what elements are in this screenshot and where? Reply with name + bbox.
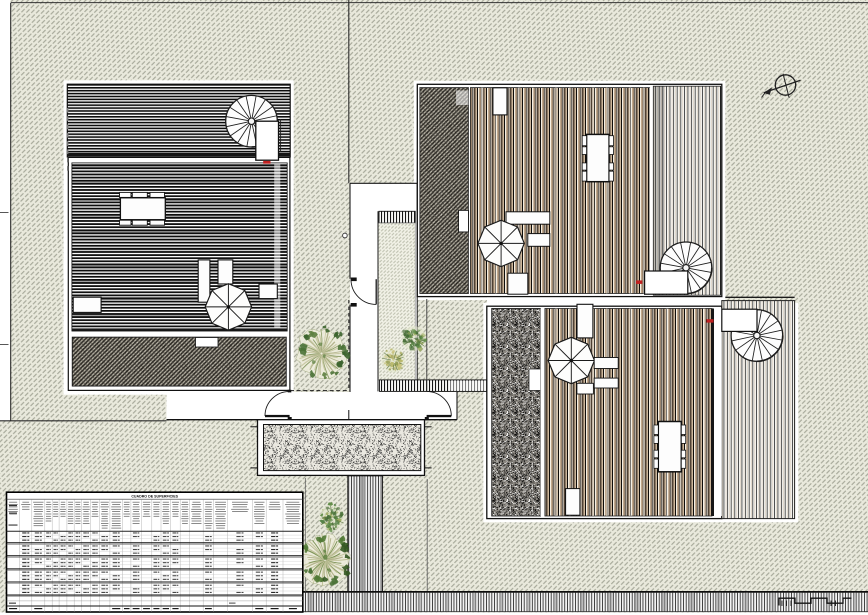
svg-text:CUADRO DE SUPERFICIES: CUADRO DE SUPERFICIES [131,495,178,499]
